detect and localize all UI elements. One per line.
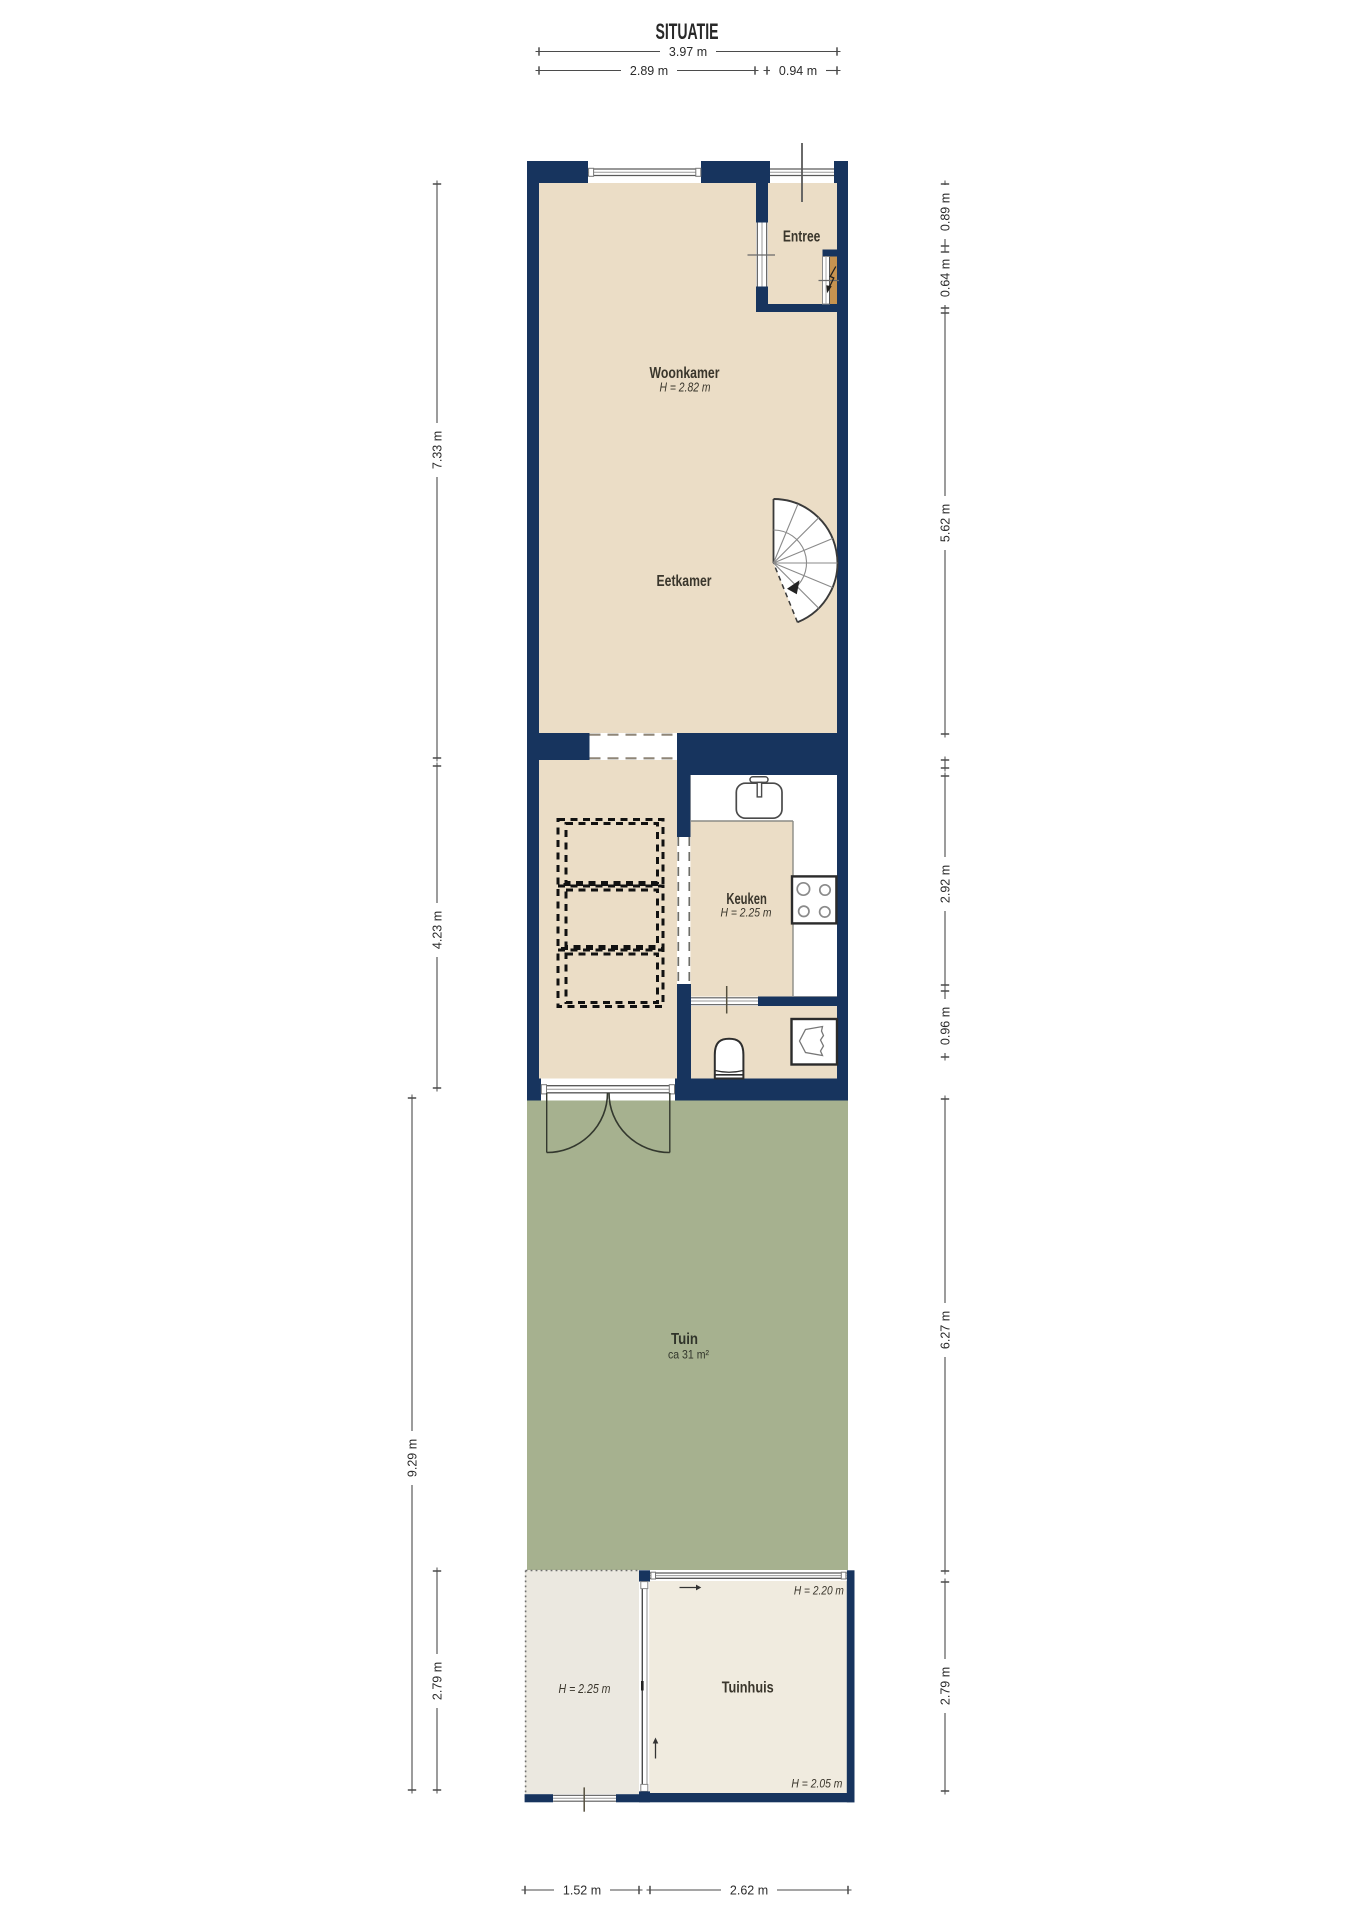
svg-text:6.27 m: 6.27 m <box>939 1311 953 1349</box>
svg-text:9.29 m: 9.29 m <box>406 1439 420 1477</box>
svg-text:2.79 m: 2.79 m <box>431 1662 445 1700</box>
svg-text:Woonkamer: Woonkamer <box>650 365 720 382</box>
svg-text:0.64 m: 0.64 m <box>939 259 953 297</box>
svg-text:ca 31 m²: ca 31 m² <box>668 1348 709 1362</box>
svg-text:Tuin: Tuin <box>671 1331 698 1348</box>
svg-text:0.94 m: 0.94 m <box>779 64 817 78</box>
svg-text:2.62 m: 2.62 m <box>730 1883 768 1897</box>
svg-text:H = 2.25 m: H = 2.25 m <box>559 1682 611 1696</box>
svg-text:3.97 m: 3.97 m <box>669 45 707 59</box>
svg-text:5.62 m: 5.62 m <box>939 504 953 542</box>
svg-text:1.52 m: 1.52 m <box>563 1883 601 1897</box>
svg-text:H = 2.20 m: H = 2.20 m <box>794 1586 844 1598</box>
svg-text:0.96 m: 0.96 m <box>939 1007 953 1045</box>
svg-text:0.89 m: 0.89 m <box>939 193 953 231</box>
svg-text:Eetkamer: Eetkamer <box>657 573 712 590</box>
svg-text:SITUATIE: SITUATIE <box>656 19 719 44</box>
svg-text:2.92 m: 2.92 m <box>939 865 953 903</box>
svg-text:H = 2.05 m: H = 2.05 m <box>791 1779 842 1791</box>
svg-text:4.23 m: 4.23 m <box>431 911 445 949</box>
svg-text:2.89 m: 2.89 m <box>630 64 668 78</box>
svg-text:2.79 m: 2.79 m <box>939 1667 953 1705</box>
svg-text:H = 2.82 m: H = 2.82 m <box>660 381 711 395</box>
svg-text:H = 2.25 m: H = 2.25 m <box>721 906 772 920</box>
svg-text:7.33 m: 7.33 m <box>431 431 445 469</box>
svg-text:Tuinhuis: Tuinhuis <box>722 1680 774 1697</box>
svg-text:Entree: Entree <box>783 229 821 246</box>
